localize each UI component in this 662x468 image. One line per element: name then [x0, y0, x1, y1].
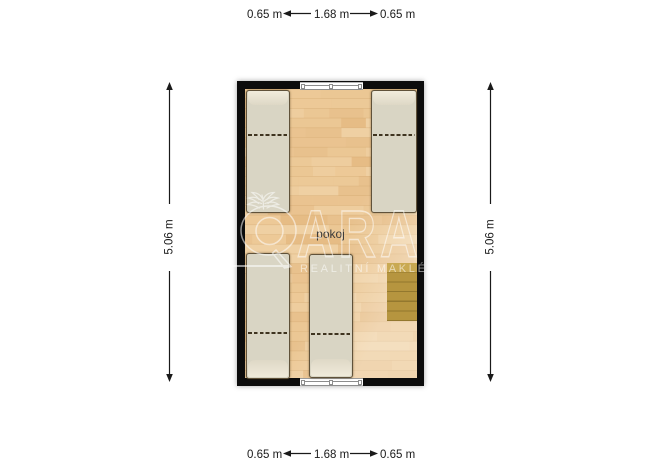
svg-text:REALITNÍ MAKLÉŘ: REALITNÍ MAKLÉŘ	[300, 262, 438, 275]
svg-text:5.06 m: 5.06 m	[164, 219, 176, 254]
svg-text:0.65 m: 0.65 m	[247, 449, 282, 461]
svg-text:0.65 m: 0.65 m	[247, 9, 282, 21]
svg-text:1.68 m: 1.68 m	[314, 449, 349, 461]
svg-text:5.06 m: 5.06 m	[485, 219, 497, 254]
svg-text:0.65 m: 0.65 m	[380, 449, 415, 461]
svg-text:1.68 m: 1.68 m	[314, 9, 349, 21]
svg-text:ARA: ARA	[297, 197, 422, 272]
svg-text:0.65 m: 0.65 m	[380, 9, 415, 21]
